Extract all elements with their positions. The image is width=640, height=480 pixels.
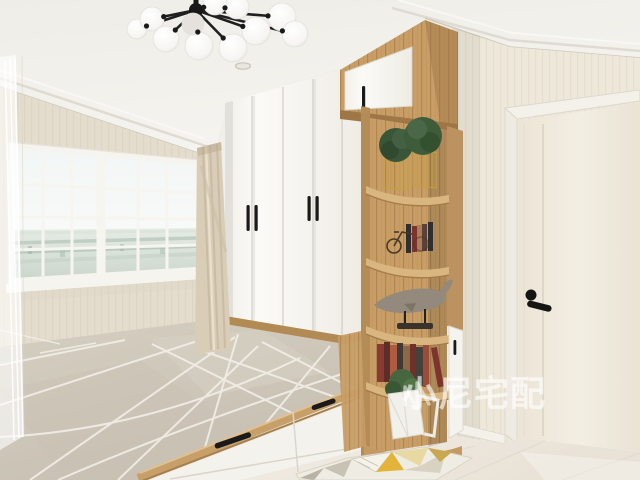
bedroom-interior-render: 小尼宅配	[0, 0, 640, 480]
scene-canvas	[0, 0, 640, 480]
door-slab	[519, 103, 640, 452]
right-wall	[452, 28, 640, 480]
recessed-downlight	[236, 63, 251, 69]
shelf-side-door-handle	[454, 340, 457, 355]
upper-cabinet-handle	[362, 86, 365, 108]
wood-corner-display-shelf	[361, 106, 463, 464]
window	[8, 142, 202, 286]
door-frame-jamb	[505, 108, 517, 444]
tatami-platform-bed	[0, 318, 385, 480]
interior-door	[505, 90, 640, 452]
shelf-right-stile	[447, 126, 463, 330]
